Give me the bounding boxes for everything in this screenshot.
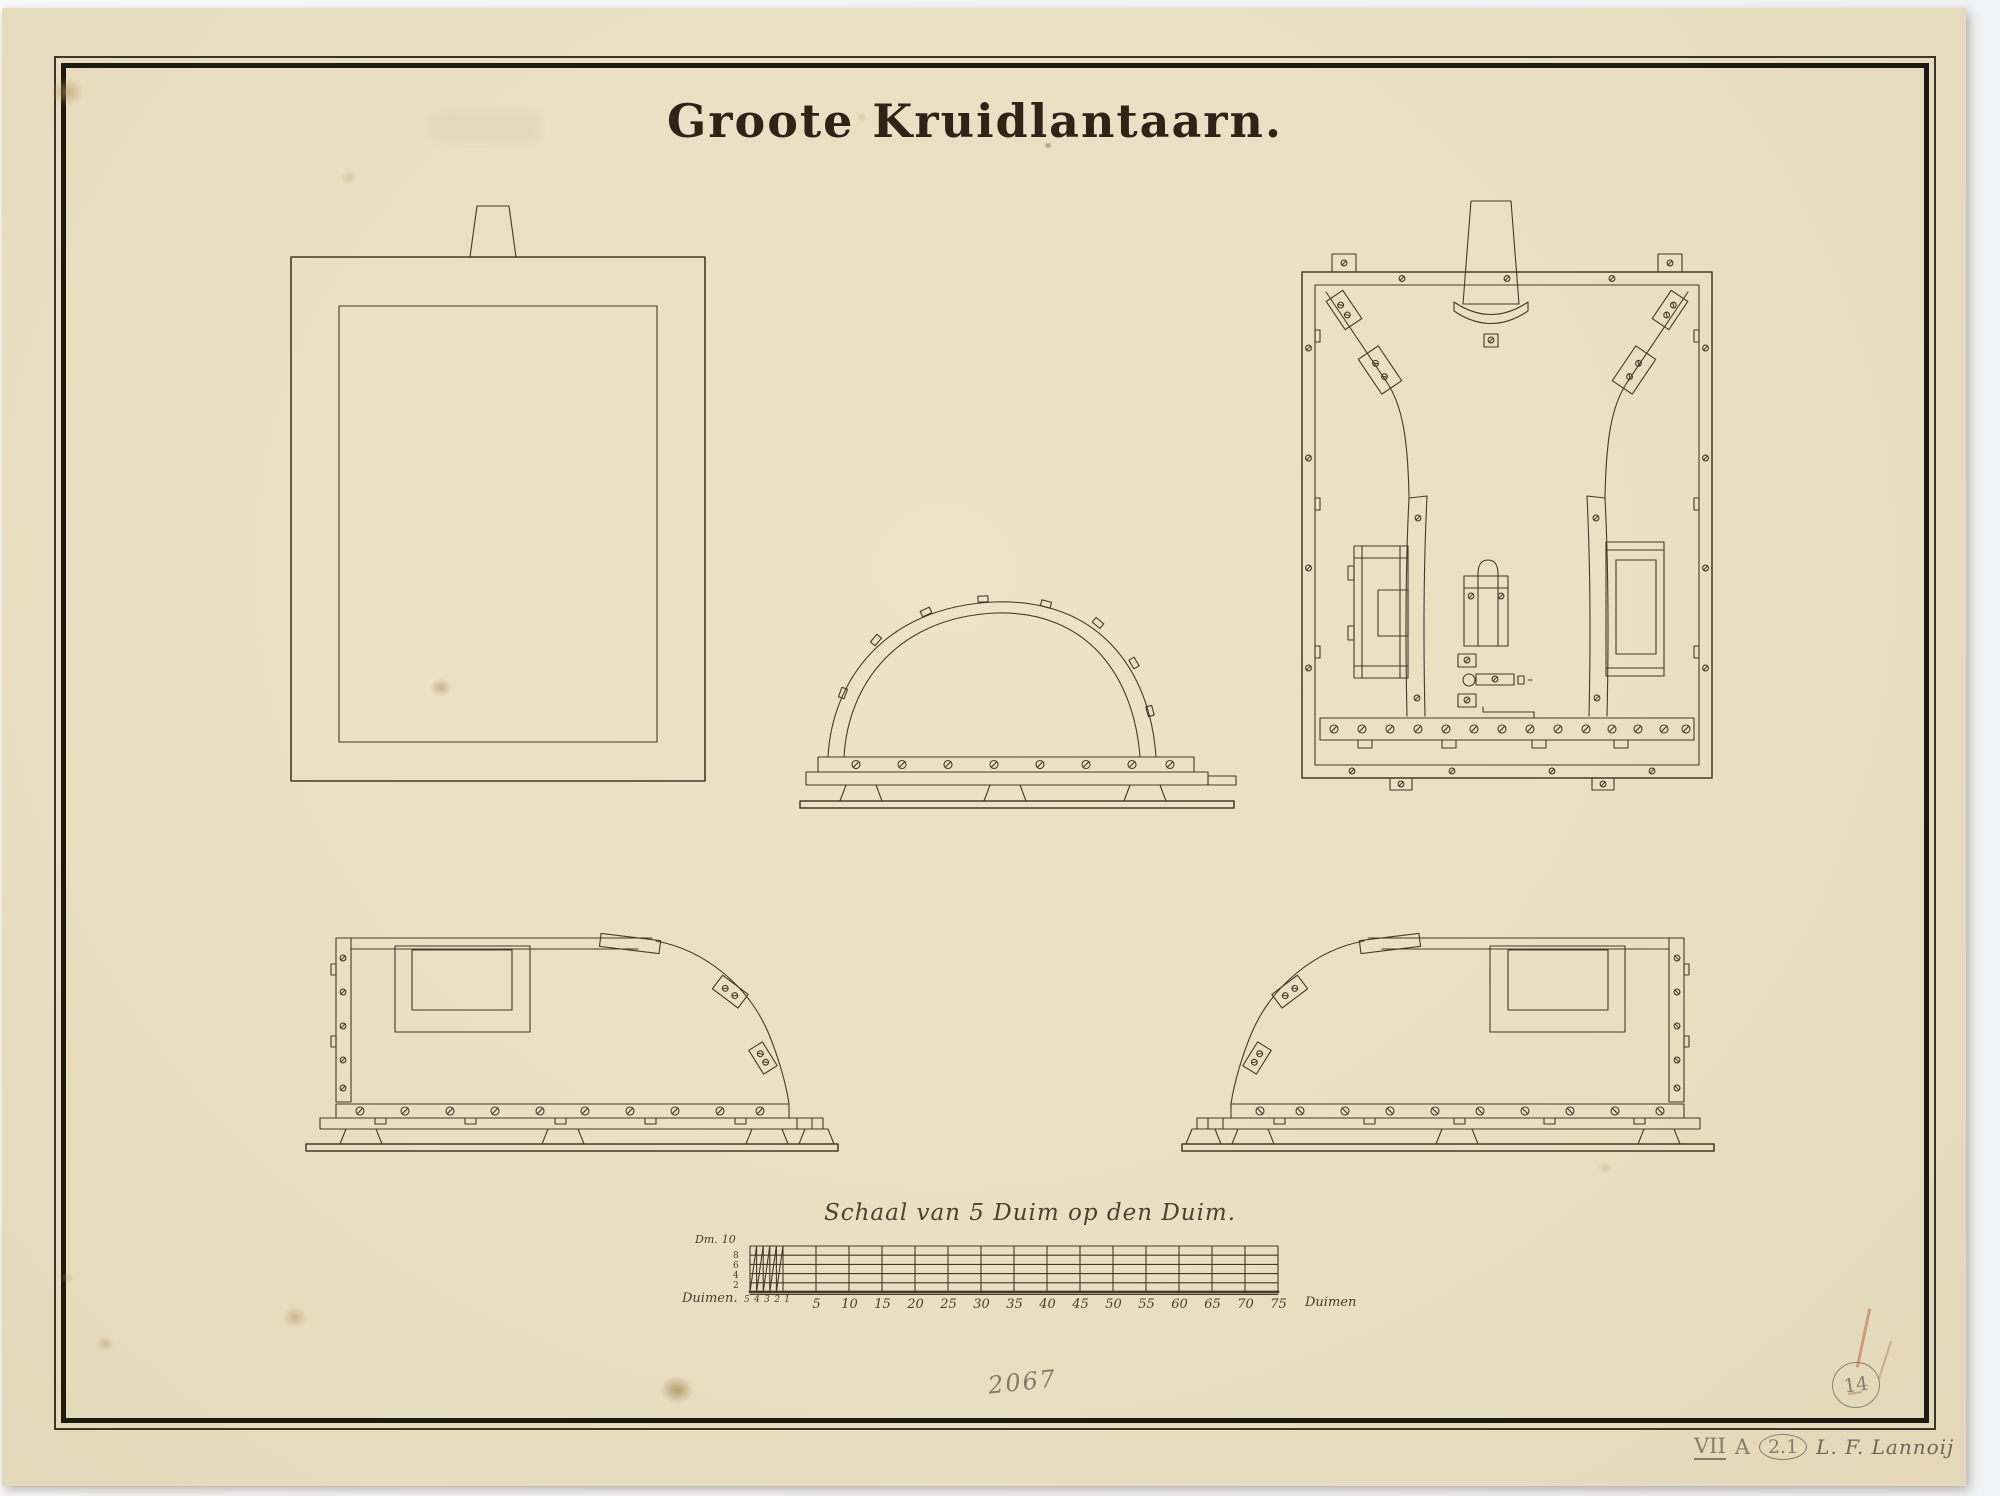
catalog-roman: VII	[1694, 1434, 1726, 1460]
dm-top-value: 10	[722, 1233, 736, 1246]
ink-speck	[1044, 142, 1052, 149]
foxing-spot	[50, 78, 84, 106]
chimney-outline	[1463, 201, 1519, 304]
right-box	[1606, 542, 1664, 676]
plan-view-interior	[1292, 198, 1722, 798]
minor-tick: 3	[764, 1295, 770, 1305]
major-tick: 55	[1130, 1297, 1163, 1312]
major-tick: 10	[833, 1297, 866, 1312]
major-tick: 50	[1097, 1297, 1130, 1312]
scale-dm-label: Dm. 10	[695, 1233, 736, 1246]
scale-major-ticks: 5 10 15 20 25 30 35 40 45 50 55 60 65 70…	[800, 1297, 1295, 1312]
side-elevation-left	[300, 928, 840, 1158]
scale-unit-right: Duimen	[1305, 1295, 1356, 1310]
row-value: 8	[733, 1251, 739, 1261]
minor-tick: 5	[744, 1295, 750, 1305]
major-tick: 45	[1064, 1297, 1097, 1312]
foxing-spot	[660, 1376, 694, 1404]
dome-clips	[838, 596, 1154, 717]
latch-mechanism	[1458, 560, 1534, 718]
major-tick: 35	[998, 1297, 1031, 1312]
row-value: 2	[733, 1281, 739, 1291]
major-tick: 15	[866, 1297, 899, 1312]
major-tick: 25	[932, 1297, 965, 1312]
drawing-title: Groote Kruidlantaarn.	[490, 94, 1460, 148]
major-tick: 30	[965, 1297, 998, 1312]
foxing-spot	[60, 1272, 74, 1284]
scale-left-rows: 8 6 4 2	[733, 1251, 739, 1289]
minor-tick: 4	[754, 1295, 760, 1305]
major-tick: 40	[1031, 1297, 1064, 1312]
major-tick: 70	[1229, 1297, 1262, 1312]
hatch-box	[395, 946, 530, 1032]
major-tick: 65	[1196, 1297, 1229, 1312]
foxing-spot	[856, 112, 868, 122]
catalog-circled: 2.1	[1759, 1434, 1807, 1460]
row-value: 6	[733, 1261, 739, 1271]
scale-title: Schaal van 5 Duim op den Duim.	[820, 1200, 1240, 1226]
major-tick: 60	[1163, 1297, 1196, 1312]
foxing-spot	[282, 1306, 308, 1328]
catalog-code: VII A 2.1 L. F. Lannoij	[1694, 1434, 1954, 1460]
foxing-spot	[430, 678, 452, 697]
major-tick: 75	[1262, 1297, 1295, 1312]
foxing-spot	[96, 1336, 114, 1351]
minor-tick: 1	[784, 1295, 790, 1305]
section-view-dome	[798, 585, 1238, 815]
scale-minor-ticks: 5 4 3 2 1	[744, 1295, 790, 1305]
side-elevation-right	[1180, 928, 1720, 1158]
scan-background: Groote Kruidlantaarn.	[0, 0, 2000, 1496]
scale-unit-left: Duimen.	[682, 1291, 737, 1306]
row-value: 4	[733, 1271, 739, 1281]
foxing-spot	[340, 170, 358, 185]
foxing-spot	[1598, 1162, 1612, 1174]
catalog-letter: A	[1735, 1435, 1750, 1459]
scale-bar	[693, 1242, 1358, 1302]
top-view-cover	[288, 200, 708, 785]
dm-text: Dm.	[695, 1233, 718, 1246]
chimney-outline	[470, 206, 516, 257]
left-box	[1348, 546, 1408, 678]
minor-tick: 2	[774, 1295, 780, 1305]
major-tick: 5	[800, 1297, 833, 1312]
major-tick: 20	[899, 1297, 932, 1312]
signature: L. F. Lannoij	[1816, 1435, 1954, 1459]
